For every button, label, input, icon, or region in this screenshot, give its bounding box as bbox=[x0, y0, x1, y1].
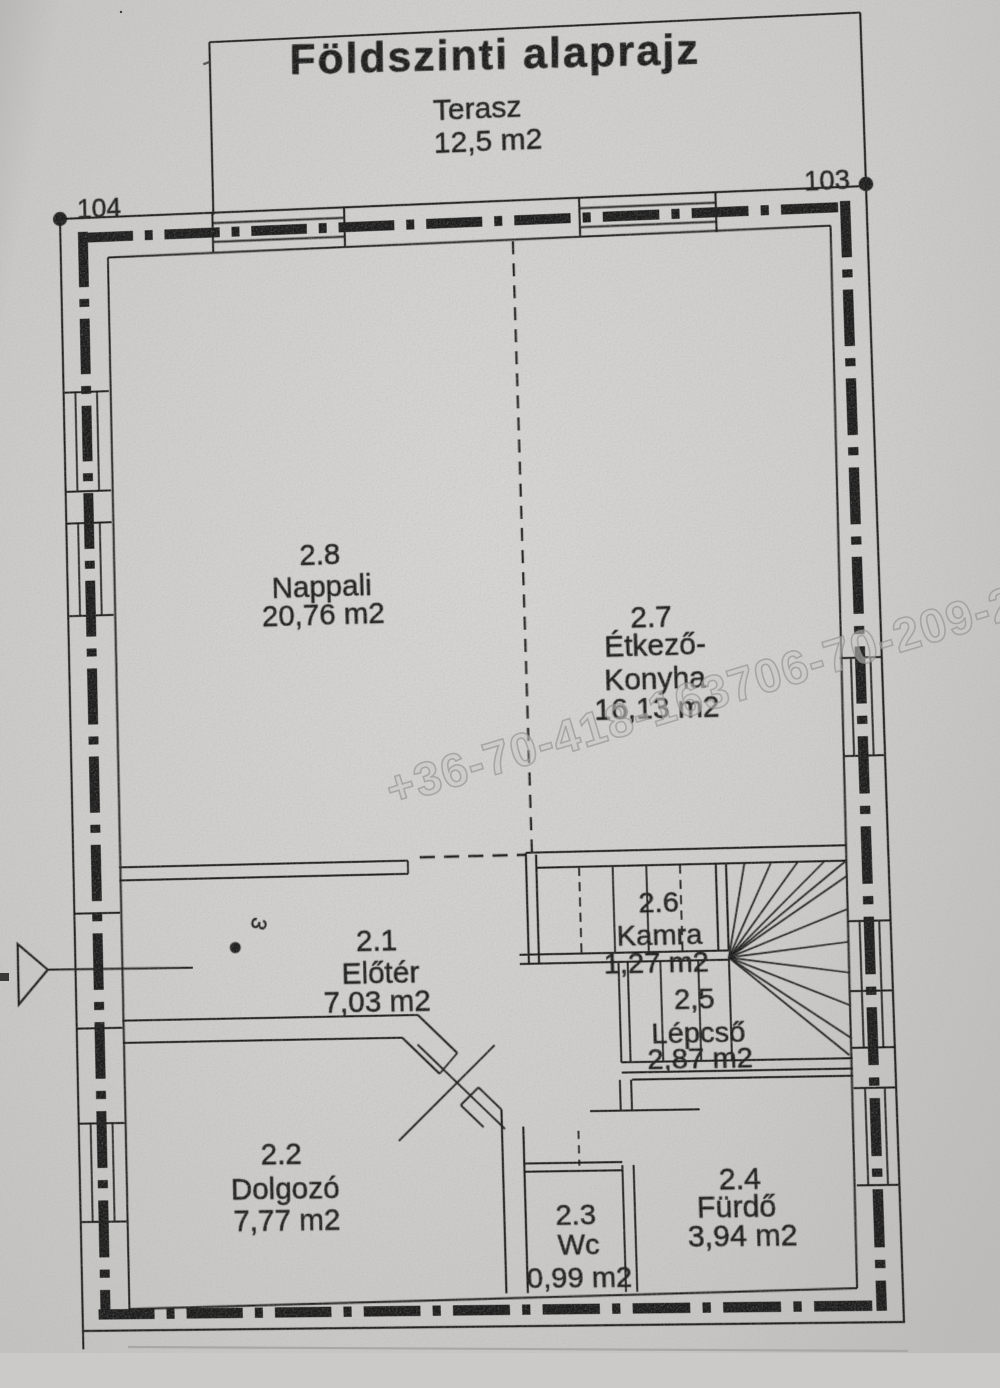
svg-text:+36-70-418-163706-70-209-2: +36-70-418-163706-70-209-2 bbox=[380, 575, 1000, 816]
